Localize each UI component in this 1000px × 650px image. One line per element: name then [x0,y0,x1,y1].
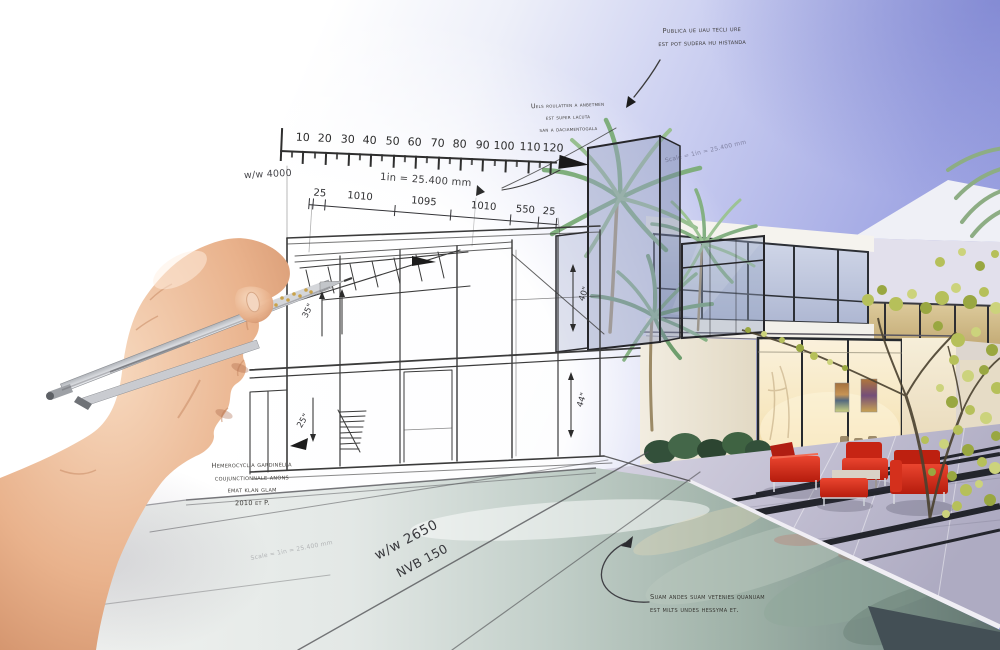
sketch-stairs [338,410,366,452]
dim-segment-label: 1095 [411,195,437,208]
dim-segment-label: 1010 [471,200,497,213]
ruler-label: 90 [475,138,490,152]
ruler-label: 10 [295,131,310,145]
ruler-label: 100 [493,139,515,153]
pen-end-knob [46,392,54,400]
annotation-mid: Uels roulatten a anbetmen est super lacu… [491,96,644,138]
annotation-arrow-top [634,60,660,97]
annotation-bottom-left: Hemerocyclia gardinella coujunctionnale … [186,458,319,510]
scene-artwork [0,0,1000,650]
ruler-label: 40 [362,133,377,147]
far-building-roof [852,180,1000,242]
ruler-label: 80 [452,137,467,151]
wall-artwork-1 [835,383,849,412]
annotation-bottom-center: Suam andes suam vetenies quanuam est mil… [650,591,870,617]
dim-segment-label: 1010 [347,190,373,203]
wall-artwork-2 [861,379,877,412]
architectural-concept-image: 10 20 30 40 50 60 70 80 90 100 110 120 2… [0,0,1000,650]
dim-segment-label: 25 [542,206,556,218]
dim-segment-label: 550 [515,204,535,216]
pen-lead-tip [344,278,352,281]
ruler-label: 60 [407,135,422,149]
ruler-label: 50 [385,134,400,148]
annotation-line: Suam andes suam vetenies quanuam [650,591,870,604]
dim-segment-label: 25 [313,187,327,199]
ruler-end-arrow [558,155,589,172]
annotation-top-right: Publica ue uau tecli ure est pot sudera … [612,22,793,52]
glass-box-balcony [682,236,764,338]
annotation-line: 2010 et P. [186,495,318,510]
annotation-line: est milts undes hessyma et. [650,604,870,617]
ruler-label: 20 [317,132,332,146]
ruler-label: 110 [519,140,541,154]
note-ww4000: w/w 4000 [244,165,293,186]
ruler-label: 70 [430,136,445,150]
ruler-label: 120 [542,141,564,155]
dimension-arrows [290,264,576,450]
ruler-label: 30 [340,133,355,147]
